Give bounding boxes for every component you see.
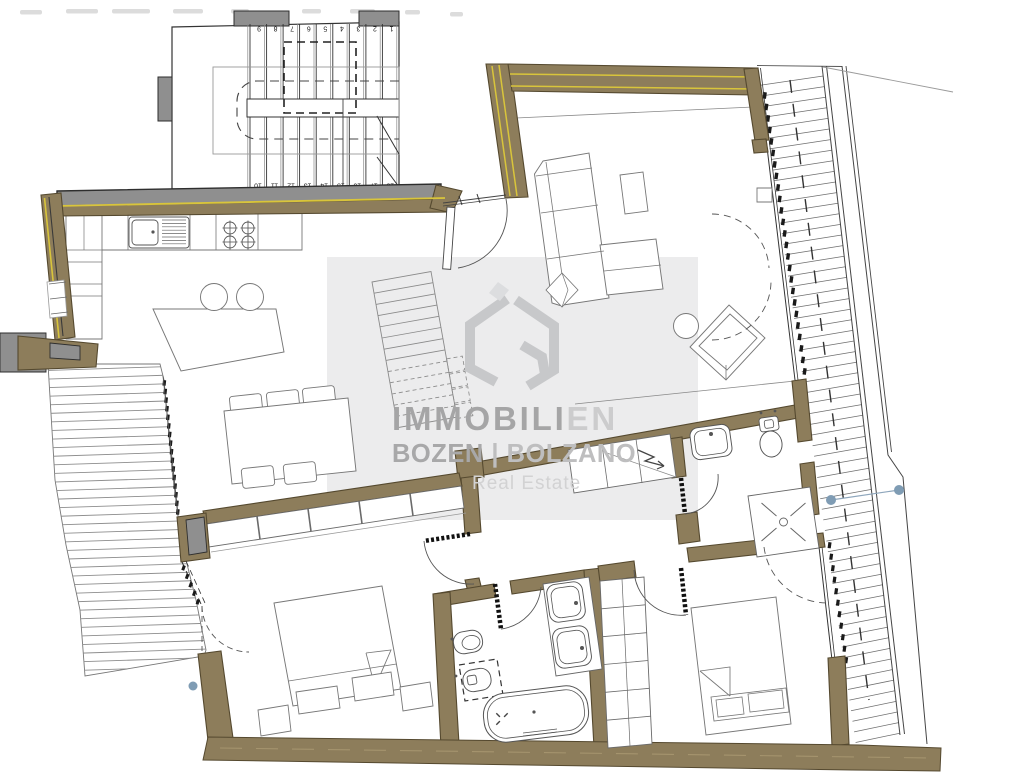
- svg-text:5: 5: [323, 25, 327, 32]
- svg-text:Real Estate: Real Estate: [472, 473, 581, 494]
- svg-text:9: 9: [257, 25, 261, 32]
- svg-text:BOZEN | BOLZANO: BOZEN | BOLZANO: [392, 440, 636, 468]
- svg-text:IMMOBILIEN: IMMOBILIEN: [392, 400, 618, 437]
- svg-text:7: 7: [290, 25, 294, 32]
- svg-text:2: 2: [373, 25, 377, 32]
- svg-text:4: 4: [340, 25, 344, 32]
- svg-text:6: 6: [307, 25, 311, 32]
- svg-text:3: 3: [356, 25, 360, 32]
- svg-text:8: 8: [274, 25, 278, 32]
- svg-text:1: 1: [389, 25, 393, 32]
